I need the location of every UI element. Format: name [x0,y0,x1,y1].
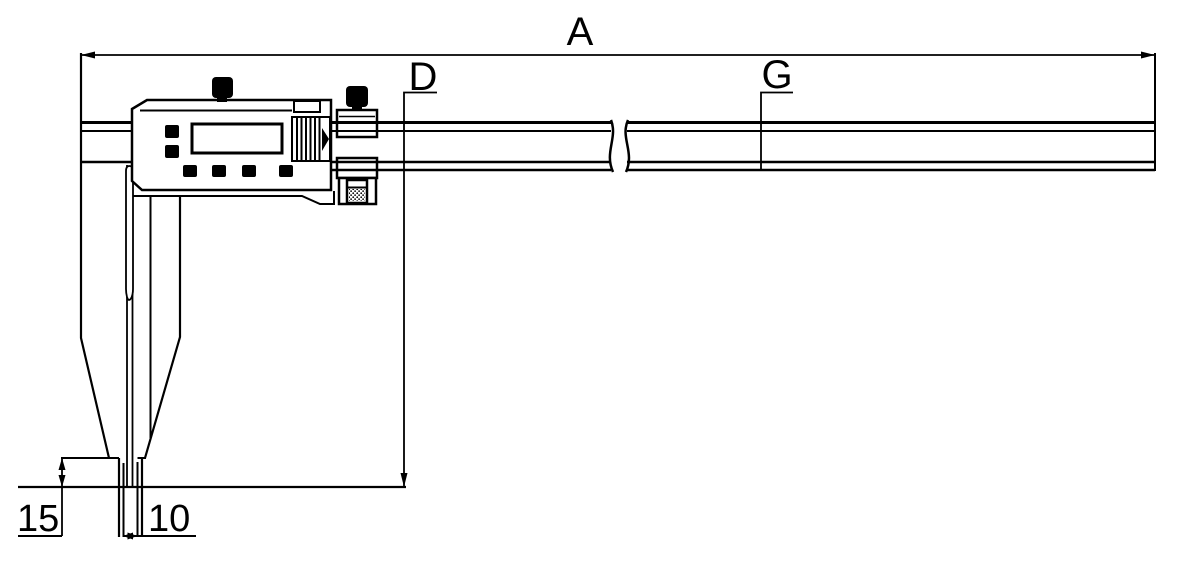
clamp-assembly [337,86,377,204]
dim-15-arrow-down-icon [59,475,66,487]
thumb-roller [292,117,330,161]
button-4-icon [279,165,293,177]
body-bottom-guide [133,191,334,204]
lock-screw-top-head [212,77,233,98]
dim-a-arrow-right-icon [1141,52,1155,59]
dim-15-arrow-up-icon [59,458,66,470]
dimensions: A D G 15 10 [17,10,1155,540]
dim-a-label: A [567,10,594,54]
fine-adjust-wheel [339,178,376,204]
caliper-technical-drawing: A D G 15 10 [0,0,1184,569]
dimension-10: 10 [123,498,196,540]
button-2-icon [212,165,226,177]
dim-10-label: 10 [148,498,190,540]
display-unit [132,77,334,204]
lock-screw-slider-head [346,86,368,107]
knurl-texture-icon [349,189,365,201]
button-zero-icon [165,145,179,158]
fixed-jaw-outer-edge [81,53,109,458]
dimension-g: G [761,53,793,170]
button-3-icon [242,165,256,177]
jaw-blade [126,166,133,300]
lcd-display [192,124,282,153]
dim-d-label: D [409,55,438,99]
dim-d-arrow-icon [401,473,408,487]
dimension-15: 15 [17,458,66,540]
lock-screw-top-icon [212,77,233,102]
dimension-d: D [401,55,438,487]
lock-screw-slider-icon [346,86,368,111]
caliper-drawing-svg: A D G 15 10 [0,0,1184,569]
dimension-a: A [81,10,1155,59]
button-1-icon [183,165,197,177]
beam-break-icon [610,120,629,172]
dim-g-label: G [761,53,792,97]
body-top-notch [294,101,320,112]
dim-15-label: 15 [17,498,59,540]
button-mode-icon [165,125,179,138]
dim-a-arrow-left-icon [81,52,95,59]
dim-d-leader-line [404,93,437,488]
